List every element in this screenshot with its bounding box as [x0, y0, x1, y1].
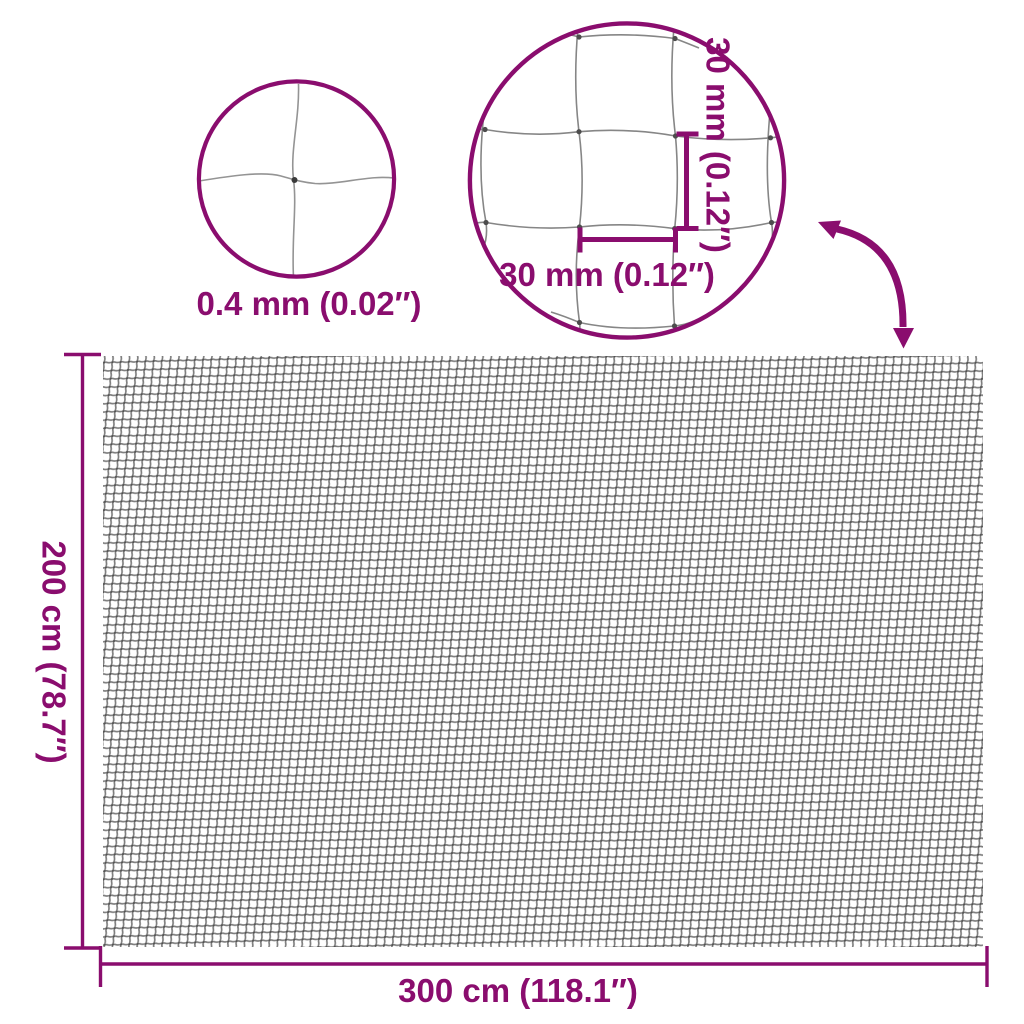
svg-text:0.4 mm (0.02″): 0.4 mm (0.02″) [197, 285, 422, 322]
svg-text:30 mm (0.12″): 30 mm (0.12″) [700, 37, 737, 253]
svg-text:30 mm (0.12″): 30 mm (0.12″) [499, 256, 715, 293]
svg-text:300 cm (118.1″): 300 cm (118.1″) [398, 972, 638, 1009]
svg-text:200 cm (78.7″): 200 cm (78.7″) [36, 540, 73, 763]
